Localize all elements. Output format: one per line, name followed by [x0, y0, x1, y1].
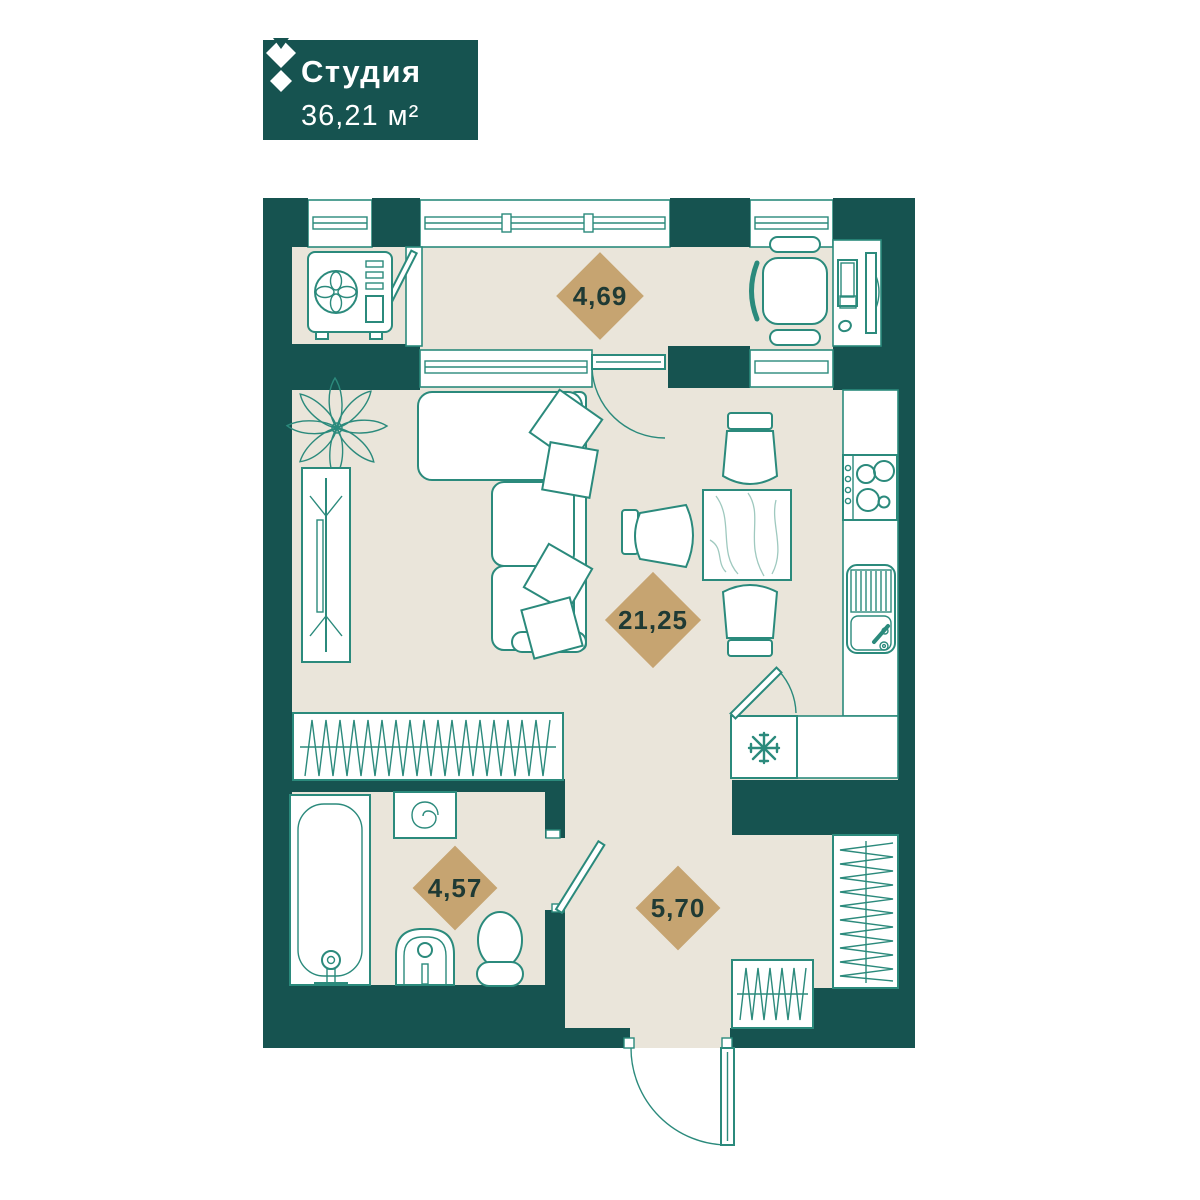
dining-table: [703, 490, 791, 580]
area-label: 4,57: [428, 873, 483, 903]
fridge-icon: [731, 716, 797, 778]
stove-icon: [843, 455, 897, 520]
title-card: Студия 36,21 м²: [263, 38, 478, 140]
apartment-type-label: Студия: [301, 54, 422, 89]
wall-left: [263, 198, 292, 1048]
wall-pier: [668, 346, 750, 388]
ac-unit-icon: [308, 252, 392, 339]
entry-threshold: [630, 1028, 730, 1048]
kitchen-counter: [843, 390, 898, 716]
wall-right-lower: [898, 388, 915, 1048]
toilet-icon: [477, 912, 523, 986]
chair: [723, 585, 777, 656]
sink-icon: [847, 565, 895, 653]
area-label: 4,69: [573, 281, 628, 311]
wall-bottom-hall: [565, 1028, 630, 1048]
chair: [723, 413, 777, 484]
window-mullion: [502, 214, 511, 232]
door-swing-arc: [631, 1048, 728, 1145]
wardrobe-icon: [833, 835, 898, 988]
wall-pier: [670, 198, 750, 247]
coat-rack-icon: [302, 468, 350, 662]
area-label: 5,70: [651, 893, 706, 923]
door-jamb: [546, 830, 560, 838]
kitchen-counter-bottom: [797, 716, 898, 778]
wall-pier: [263, 198, 308, 247]
floor-plan-svg: Студия 36,21 м²: [0, 0, 1200, 1200]
area-label: 21,25: [618, 605, 688, 635]
wall-hall-topright: [732, 780, 898, 835]
door-jamb: [624, 1038, 634, 1048]
bathtub-icon: [290, 795, 370, 985]
wall-loggia-bottom-left: [263, 344, 420, 390]
entry-door: [624, 1038, 734, 1145]
door-jamb: [722, 1038, 732, 1048]
pedestal-sink-icon: [396, 929, 454, 985]
wall-bottom: [263, 985, 565, 1048]
wall-under-desk: [833, 346, 915, 390]
snowflake-icon: [749, 733, 779, 763]
wall-corner-bottomright: [813, 988, 915, 1048]
apartment-area-value: 36,21 м²: [301, 100, 419, 132]
floor-plan-page: Студия 36,21 м²: [0, 0, 1200, 1200]
window-mullion: [584, 214, 593, 232]
wardrobe-icon: [732, 960, 813, 1028]
wardrobe-icon: [293, 713, 563, 780]
washing-machine-icon: [394, 792, 456, 838]
wall-pier: [372, 198, 420, 247]
